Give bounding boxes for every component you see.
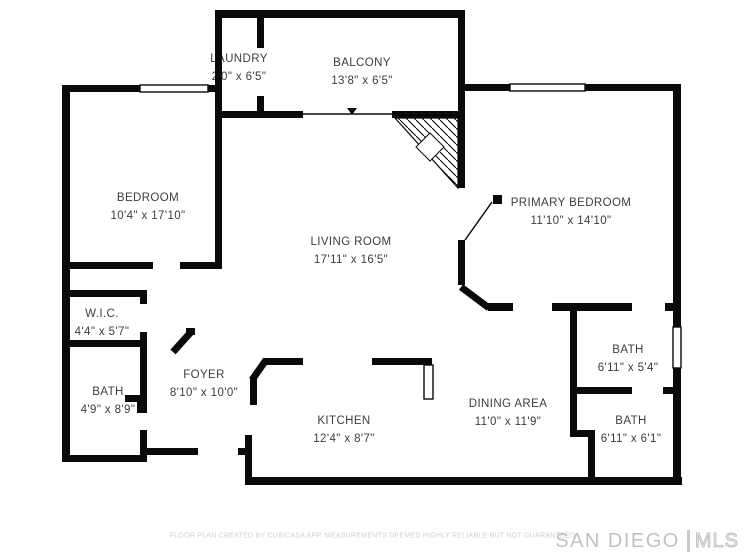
room-dims: 12'4" x 8'7" [313,430,374,448]
room-dims: 11'10" x 14'10" [511,212,632,230]
room-label-bedroom: BEDROOM 10'4" x 17'10" [110,189,185,225]
sandiego-mls-logo: SAN DIEGO MLS [555,530,739,552]
room-name: PRIMARY BEDROOM [511,194,632,212]
room-dims: 4'4" x 5'7" [75,323,130,341]
room-name: W.I.C. [75,305,130,323]
floor-plan: LAUNDRY 2'0" x 6'5" BALCONY 13'8" x 6'5"… [0,0,747,560]
room-label-dining-area: DINING AREA 11'0" x 11'9" [469,395,548,431]
room-label-foyer: FOYER 8'10" x 10'0" [170,366,238,402]
disclaimer-text: FLOOR PLAN CREATED BY CUBICASA APP. MEAS… [170,533,578,540]
room-label-primary-bedroom: PRIMARY BEDROOM 11'10" x 14'10" [511,194,632,230]
room-dims: 17'11" x 16'5" [310,251,391,269]
room-dims: 8'10" x 10'0" [170,384,238,402]
room-name: BATH [81,383,136,401]
room-dims: 4'9" x 8'9" [81,401,136,419]
room-name: BEDROOM [110,189,185,207]
room-name: BATH [601,412,662,430]
room-label-wic: W.I.C. 4'4" x 5'7" [75,305,130,341]
room-name: KITCHEN [313,412,374,430]
room-name: LAUNDRY [210,50,268,68]
room-label-balcony: BALCONY 13'8" x 6'5" [331,54,392,90]
room-dims: 13'8" x 6'5" [331,72,392,90]
room-name: LIVING ROOM [310,233,391,251]
room-label-bath-left: BATH 4'9" x 8'9" [81,383,136,419]
room-name: BATH [598,341,659,359]
stairs-hatch [395,118,458,188]
room-label-living-room: LIVING ROOM 17'11" x 16'5" [310,233,391,269]
room-label-kitchen: KITCHEN 12'4" x 8'7" [313,412,374,448]
room-dims: 6'11" x 6'1" [601,430,662,448]
room-dims: 11'0" x 11'9" [469,413,548,431]
logo-divider [687,530,690,552]
room-name: FOYER [170,366,238,384]
door-details [303,108,492,240]
room-label-laundry: LAUNDRY 2'0" x 6'5" [210,50,268,86]
logo-mls-text: MLS [695,531,739,551]
room-label-bath-lower-right: BATH 6'11" x 6'1" [601,412,662,448]
room-dims: 10'4" x 17'10" [110,207,185,225]
room-label-bath-upper-right: BATH 6'11" x 5'4" [598,341,659,377]
room-dims: 6'11" x 5'4" [598,359,659,377]
logo-city-text: SAN DIEGO [555,531,680,551]
room-name: DINING AREA [469,395,548,413]
room-dims: 2'0" x 6'5" [210,68,268,86]
room-name: BALCONY [331,54,392,72]
